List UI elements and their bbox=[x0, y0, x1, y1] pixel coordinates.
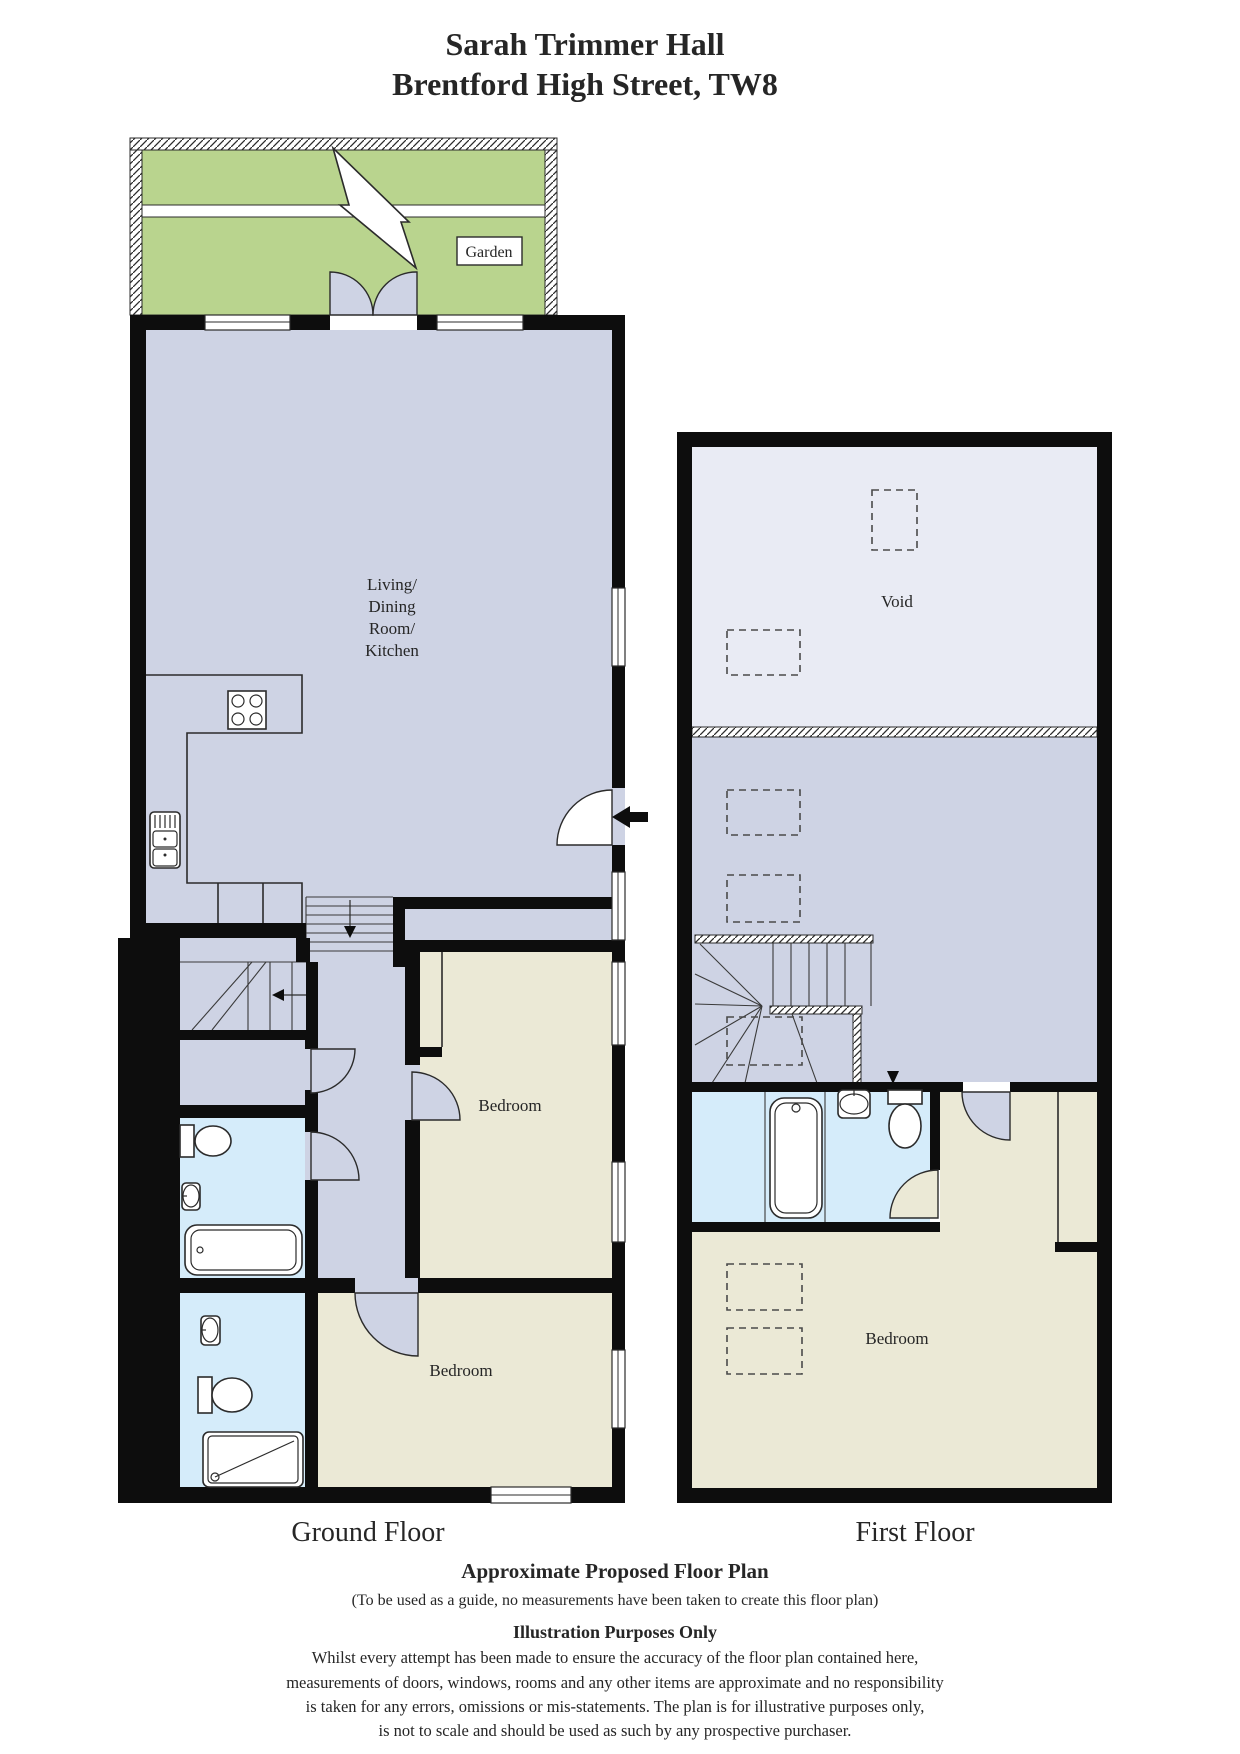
window bbox=[612, 588, 625, 666]
window bbox=[612, 872, 625, 940]
bathtub-icon bbox=[770, 1098, 822, 1218]
ground-floor-caption: Ground Floor bbox=[291, 1517, 445, 1548]
toilet-icon bbox=[198, 1377, 252, 1413]
first-floor-caption: First Floor bbox=[855, 1517, 975, 1548]
footer-disclaimer-line1: Whilst every attempt has been made to en… bbox=[312, 1648, 919, 1667]
window bbox=[491, 1487, 571, 1503]
room-ff-bedroom-side bbox=[940, 1092, 1097, 1232]
bedroom1-label: Bedroom bbox=[478, 1096, 541, 1115]
garden-fence-top bbox=[130, 138, 557, 150]
footer-disclaimer-line3: is taken for any errors, omissions or mi… bbox=[306, 1697, 925, 1716]
window bbox=[205, 315, 290, 330]
floor-plan-canvas: Sarah Trimmer Hall Brentford High Street… bbox=[0, 0, 1240, 1754]
bathtub-icon bbox=[185, 1225, 302, 1275]
room-ff-bedroom-main bbox=[692, 1232, 1097, 1488]
window bbox=[612, 962, 625, 1045]
living-room-label-line4: Kitchen bbox=[365, 641, 419, 660]
floor-plan-page: Sarah Trimmer Hall Brentford High Street… bbox=[0, 0, 1240, 1754]
shower-icon bbox=[203, 1432, 303, 1487]
page-title-line2: Brentford High Street, TW8 bbox=[392, 66, 778, 102]
void-divider bbox=[692, 727, 1097, 737]
garden-fence-right bbox=[545, 150, 557, 315]
page-title-line1: Sarah Trimmer Hall bbox=[445, 26, 724, 62]
garden-fence-left bbox=[130, 150, 142, 315]
footer-purpose: Illustration Purposes Only bbox=[513, 1622, 717, 1642]
window bbox=[437, 315, 523, 330]
living-room-label-line1: Living/ bbox=[367, 575, 417, 594]
toilet-icon bbox=[888, 1090, 922, 1148]
toilet-icon bbox=[180, 1125, 231, 1157]
living-room-label-line3: Room/ bbox=[369, 619, 416, 638]
ff-bedroom-label: Bedroom bbox=[865, 1329, 928, 1348]
bedroom2-label: Bedroom bbox=[429, 1361, 492, 1380]
void-label: Void bbox=[881, 592, 913, 611]
room-landing bbox=[692, 737, 1097, 1082]
footer-subheading: (To be used as a guide, no measurements … bbox=[352, 1592, 879, 1609]
window bbox=[612, 1350, 625, 1428]
fridge-unit bbox=[150, 812, 180, 868]
living-room-label-line2: Dining bbox=[368, 597, 416, 616]
footer-disclaimer-line4: is not to scale and should be used as su… bbox=[379, 1721, 852, 1740]
hob bbox=[228, 691, 266, 729]
footer-disclaimer-line2: measurements of doors, windows, rooms an… bbox=[286, 1673, 944, 1692]
sink-icon bbox=[201, 1316, 220, 1345]
sink-icon bbox=[838, 1090, 870, 1118]
window bbox=[612, 1162, 625, 1242]
sink-icon bbox=[182, 1183, 200, 1210]
footer-heading: Approximate Proposed Floor Plan bbox=[461, 1559, 769, 1583]
garden-label: Garden bbox=[465, 244, 512, 261]
